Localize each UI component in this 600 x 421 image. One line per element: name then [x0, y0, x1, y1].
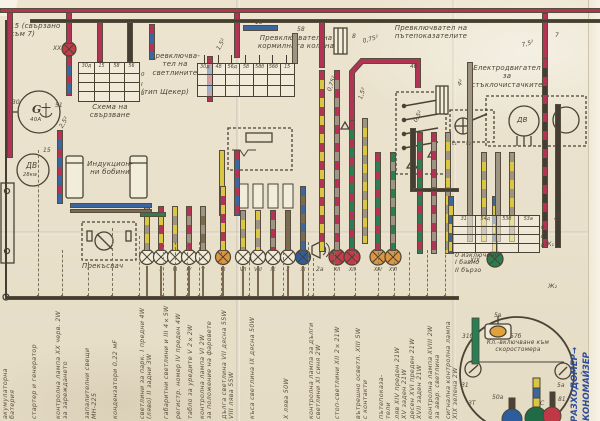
generator-rating: 40А: [30, 117, 41, 123]
wire-gauge-label: 31б: [462, 333, 473, 340]
lamp-lead: [302, 266, 304, 296]
table-header: 30д: [79, 63, 94, 74]
wire-gauge-label: XX: [53, 45, 61, 52]
dashed-lead: [249, 252, 250, 296]
table-header: 56: [124, 63, 139, 74]
wire-gauge-label: С: [540, 400, 544, 407]
connector-plugs: [502, 378, 561, 421]
bus-line: [70, 203, 152, 208]
lamp-lead: [242, 266, 244, 296]
lamp-VIII: [251, 250, 266, 265]
wire-segment: [334, 70, 340, 251]
dashed-lead: [313, 258, 314, 296]
component-caption: X лява 50W: [283, 301, 290, 419]
wiper-motor-title: Електродвигател за стъклочистачките: [448, 64, 566, 89]
connector-pin: [272, 55, 273, 63]
component-caption: контролна лампа VI 2W за положение на фа…: [199, 301, 213, 419]
speedometer-connector: [460, 316, 574, 421]
coils-label: Индукцион- ни бобини: [87, 160, 133, 177]
wire-gauge-label: Ж₂: [548, 283, 557, 290]
wire-gauge-label: 58: [297, 26, 305, 33]
charge-lamp-XX: [62, 42, 76, 56]
table-header: 4б: [212, 64, 226, 75]
dashed-lead: [62, 250, 63, 296]
component-caption: табло за уредите V 2×2W: [187, 301, 194, 419]
component-caption: контролна лампа XX черв. 2W за зареждане…: [55, 301, 69, 419]
wire-segment: [285, 210, 291, 251]
ground-symbol: [341, 122, 349, 129]
breaker-label: Прекъсвач: [82, 262, 140, 270]
wire-gauge-label: 7: [555, 32, 559, 39]
position-label: I: [541, 234, 543, 240]
component-caption: контролна лампа XVIII 2W за авар. светли…: [427, 301, 441, 419]
table-header: 58б: [253, 64, 267, 75]
wire-gauge-label: 57б: [510, 333, 521, 340]
component-caption: ляв XIV преден 21W XV заден 21W: [394, 301, 408, 419]
wire-segment: [234, 9, 240, 58]
wire-segment: [349, 120, 355, 251]
lamp-IX: [266, 250, 281, 265]
wire-gauge-label: ЗТ: [468, 400, 476, 407]
lamp-lead: [287, 266, 289, 296]
lamp-V: [196, 250, 211, 265]
wire-gauge-label: 81: [558, 396, 566, 403]
starter-rating: 28кw: [23, 173, 37, 179]
dashed-lead: [409, 252, 410, 296]
wire-gauge-label: 8: [352, 33, 356, 40]
light-switch-type: (тип Щекер): [138, 88, 192, 96]
wire-segment: [390, 152, 396, 251]
wire-segment: [542, 58, 548, 248]
table-header: 56б: [267, 64, 281, 75]
component-caption: къса светлина IX дясна 50W: [249, 301, 256, 419]
wiper-motor: [486, 96, 586, 146]
table-header: 54д: [475, 216, 497, 227]
table-header: 15: [94, 63, 109, 74]
component-caption: вътрешно осветл. XIII 5W с контакти: [355, 301, 369, 419]
table-header: 53б: [496, 216, 518, 227]
wiper-modes-legend: 0 изключено I бавно II бързо: [455, 252, 535, 274]
inline-fuse: [283, 184, 293, 208]
lamp-lead: [160, 266, 162, 296]
wire-segment: [431, 132, 437, 254]
wire-segment: [234, 150, 240, 216]
connector-pin: [204, 55, 205, 63]
lamp-lead: [174, 266, 176, 296]
wire-gauge-label: 5а: [557, 382, 565, 389]
component-caption: сигнална контролна лампа XIX зелена 2W: [445, 301, 459, 419]
wire-gauge-label: 4б: [410, 63, 418, 70]
wire-segment: [200, 206, 206, 251]
schematic-page: 15 (свързано към 7) Превключва- тел на с…: [0, 0, 600, 421]
table-header: 15: [280, 64, 294, 75]
wire-segment: [66, 12, 72, 44]
component-caption: светлини за парк. I предни 4W (ляво) II …: [139, 301, 153, 419]
connector-pin: [286, 55, 287, 63]
wire-segment: [270, 210, 276, 251]
bus-line: [5, 296, 459, 300]
wire-segment: [362, 118, 368, 244]
wire-segment: [57, 130, 63, 204]
breaker-box: [82, 222, 136, 260]
bus-line: [0, 8, 600, 13]
handwritten-note-1: РАЗХОДОМЕР→: [570, 322, 580, 421]
wire-gauge-label: 15: [255, 19, 263, 26]
component-caption: десен XVI преден 21W XVII заден 21W: [409, 301, 423, 419]
position-label: 0: [141, 72, 145, 78]
lamp-number: XVI: [385, 267, 401, 273]
wire-gauge-label: Ж₁: [545, 241, 554, 248]
light-switch-table: 30д155856: [78, 62, 140, 102]
lamp-IV: [182, 250, 197, 265]
dashed-lead: [88, 262, 89, 296]
wire-gauge-label: XIX: [470, 257, 480, 264]
connector-pin: [231, 55, 232, 63]
table-header: 56д: [225, 64, 239, 75]
dashed-lead: [427, 250, 428, 296]
component-caption: акумулаторна батерия: [2, 301, 16, 419]
wiper-switch-table: 3154д53б53а: [452, 215, 540, 253]
lamp-II: [154, 250, 169, 265]
frame-line: [5, 20, 7, 297]
wire-gauge-label: 2а: [316, 266, 324, 273]
turn-switch-title: Превключвател на пътепоказателите: [380, 24, 482, 41]
component-caption: стартер и генератор: [31, 301, 38, 419]
wire-segment: [66, 56, 72, 96]
wire-segment: [410, 128, 416, 192]
wire-segment: [319, 22, 325, 68]
wire-gauge-label: З1: [461, 382, 469, 389]
lamp-lead: [257, 266, 259, 296]
lamp-number: XII: [329, 267, 345, 273]
position-label: 0: [541, 225, 545, 231]
component-caption: кондензатори 0,22 мF: [112, 301, 119, 419]
dashed-lead: [355, 252, 356, 296]
table-header: 58: [239, 64, 253, 75]
wire-segment: [97, 22, 103, 62]
wiper-motor-letters: ДВ: [517, 116, 528, 124]
wire-segment: [319, 70, 325, 252]
wire-segment: [417, 132, 423, 254]
component-caption: габаритни светлини и III 4×5W: [163, 301, 170, 419]
starter-letters: ДВ: [26, 162, 37, 171]
wire-gauge-label: 5в: [494, 312, 501, 319]
inline-fuse: [253, 184, 263, 208]
dashed-lead: [334, 252, 335, 296]
turn-lamp: [385, 249, 401, 265]
connector-pin: [218, 55, 219, 63]
wire-segment: [255, 210, 261, 251]
lamp-number: XII: [344, 267, 360, 273]
table-header: 53а: [518, 216, 540, 227]
dashed-lead: [38, 150, 39, 296]
wire-gauge-label: 15: [43, 147, 51, 154]
table-header: 58: [109, 63, 124, 74]
bus-line: [413, 188, 459, 192]
generator-letter: G: [32, 103, 42, 116]
handwritten-note-2: ИКОНОМАЙЗЕР: [582, 328, 592, 421]
speedometer-note: Кл.-включване към скоростомера: [481, 340, 555, 354]
lamp-lead: [272, 266, 274, 296]
wire-gauge-label: 50а: [492, 394, 503, 401]
connector-pin: [259, 55, 260, 63]
component-caption: пътепоказа- тели: [378, 301, 392, 419]
wire-gauge-label: t₂: [466, 140, 471, 147]
steering-connector-table: 30д4б56д5858б56б15: [197, 63, 295, 97]
lamp-I: [140, 250, 155, 265]
dashed-lead: [394, 252, 395, 296]
component-caption: контролна лампа за дълги светлини XI син…: [308, 301, 322, 419]
component-caption: запалителни свещи МН-225: [84, 301, 98, 419]
table-header: 30д: [198, 64, 212, 75]
position-label: II: [541, 243, 544, 249]
dashed-lead: [283, 252, 284, 296]
lamp-lead: [202, 266, 204, 296]
wire-segment: [555, 104, 561, 248]
wire-segment: [240, 210, 246, 251]
wire-segment: [292, 33, 298, 64]
component-caption: дълга светлина VII дясна 55W VIII лява 5…: [221, 301, 235, 419]
connector-pin: [245, 55, 246, 63]
table-header: 31: [453, 216, 475, 227]
dashed-lead: [112, 228, 113, 296]
component-caption: стоп-светлини XII 2×21W: [334, 301, 341, 419]
component-caption: регистр. номер IV преден 4W: [175, 301, 182, 419]
lamp-lead: [146, 266, 148, 296]
wire-gauge-label: 51: [55, 102, 63, 109]
position-label: II: [141, 91, 144, 97]
wire-segment: [375, 152, 381, 251]
position-label: I: [141, 82, 143, 88]
bus-line: [140, 212, 166, 217]
battery-symbol: [1, 183, 14, 263]
dashed-lead: [378, 252, 379, 296]
wire-segment: [300, 186, 306, 251]
lamp-VI: [216, 250, 231, 265]
dashed-lead: [445, 250, 446, 296]
lamp-lead: [222, 266, 224, 296]
lamp-lead: [188, 266, 190, 296]
scheme-caption: Схема на свързване: [84, 103, 136, 120]
wire-segment: [149, 24, 155, 60]
wire-segment: [7, 9, 13, 158]
wire-gauge-label: 30: [12, 99, 20, 106]
inline-fuse: [268, 184, 278, 208]
stop-lamp: [344, 249, 360, 265]
wire-segment: [127, 22, 133, 62]
bus-line: [30, 19, 600, 23]
lamp-number: XIV: [370, 267, 386, 273]
stop-lamp: [329, 249, 345, 265]
wire-segment: [220, 186, 226, 251]
wire-gauge-label: t₁: [452, 140, 457, 147]
